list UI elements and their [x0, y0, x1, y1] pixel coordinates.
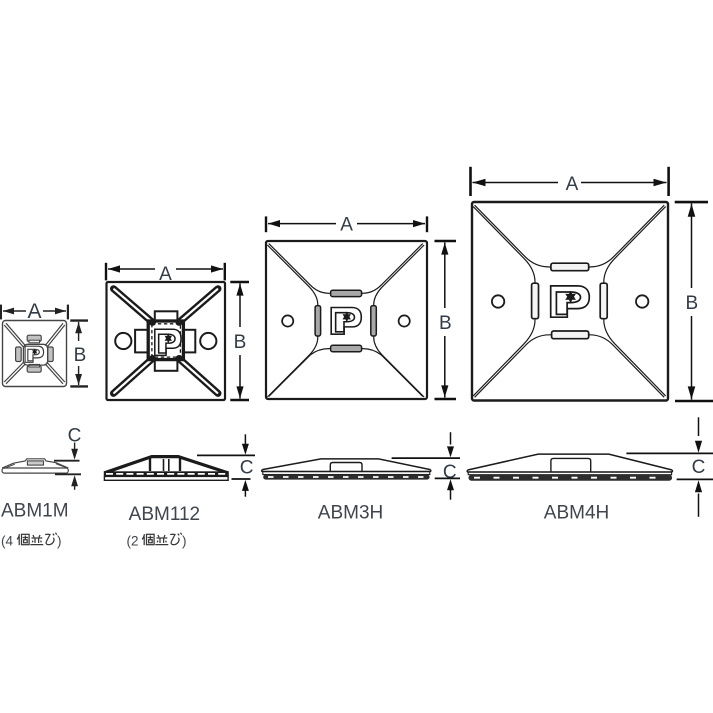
svg-text:): ) [182, 534, 187, 549]
svg-text:ABM1M: ABM1M [1, 501, 69, 522]
svg-text:(4: (4 [1, 534, 13, 549]
svg-text:C: C [240, 457, 254, 478]
svg-text:ABM4H: ABM4H [544, 503, 609, 524]
svg-text:B: B [439, 313, 452, 334]
svg-text:A: A [27, 300, 41, 323]
svg-text:): ) [57, 534, 62, 549]
svg-text:C: C [443, 462, 457, 483]
svg-text:C: C [692, 457, 706, 478]
svg-text:A: A [159, 264, 172, 285]
svg-text:A: A [340, 214, 353, 235]
svg-text:ABM3H: ABM3H [318, 503, 383, 524]
svg-text:B: B [74, 345, 87, 366]
svg-text:ABM112: ABM112 [129, 504, 200, 525]
svg-text:A: A [566, 174, 579, 195]
svg-text:B: B [685, 293, 698, 314]
svg-text:B: B [234, 332, 247, 353]
svg-text:(2: (2 [127, 534, 139, 549]
